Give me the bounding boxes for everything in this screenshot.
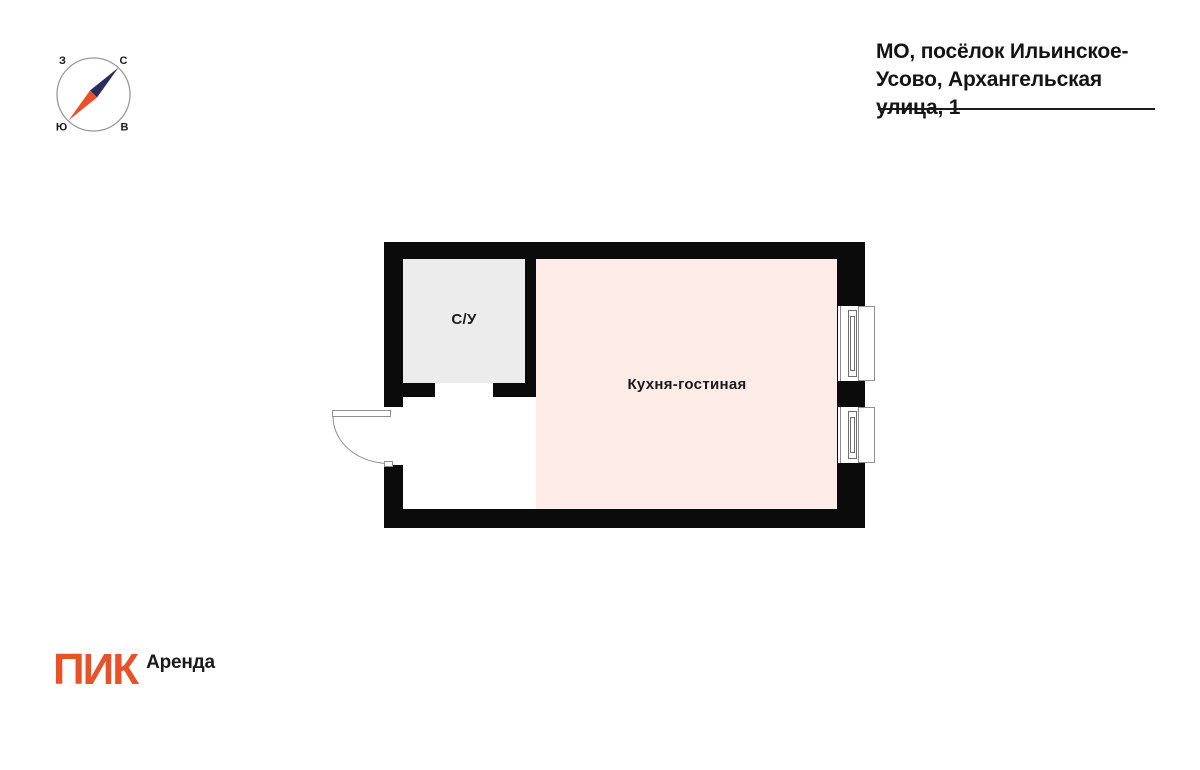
window-icon — [838, 306, 875, 381]
pik-arenda-logo: ПИК Аренда — [53, 651, 215, 689]
room-label-bathroom: С/У — [451, 311, 477, 328]
window-sill — [859, 307, 875, 381]
door-icon — [333, 411, 393, 467]
address-line-2: Усово, Архангельская улица, 1 — [876, 66, 1162, 122]
door-leaf — [333, 411, 391, 417]
window-pane — [851, 317, 855, 371]
bathroom-doorway-opening — [435, 383, 493, 397]
logo-brand-text: ПИК — [53, 651, 137, 689]
room-label-kitchen-living: Кухня-гостиная — [627, 376, 746, 393]
window-pane — [851, 418, 855, 453]
floorplan-page: З С Ю В МО, посёлок Ильинское- Усово, Ар… — [0, 0, 1200, 770]
hallway-area — [403, 397, 536, 509]
compass-label-east: В — [121, 122, 129, 134]
compass-rose: З С Ю В — [48, 44, 140, 140]
door-jamb — [385, 462, 393, 467]
address-line-1: МО, посёлок Ильинское- — [876, 38, 1162, 66]
header-divider — [878, 108, 1155, 110]
logo-product-text: Аренда — [146, 653, 215, 673]
window-icon — [838, 407, 875, 463]
compass-label-south: Ю — [56, 122, 67, 134]
window-sill — [859, 408, 875, 463]
floor-plan: С/У Кухня-гостиная — [330, 238, 878, 532]
compass-label-west: З — [59, 55, 66, 67]
compass-label-north: С — [120, 55, 128, 67]
door-swing-arc — [333, 417, 389, 464]
